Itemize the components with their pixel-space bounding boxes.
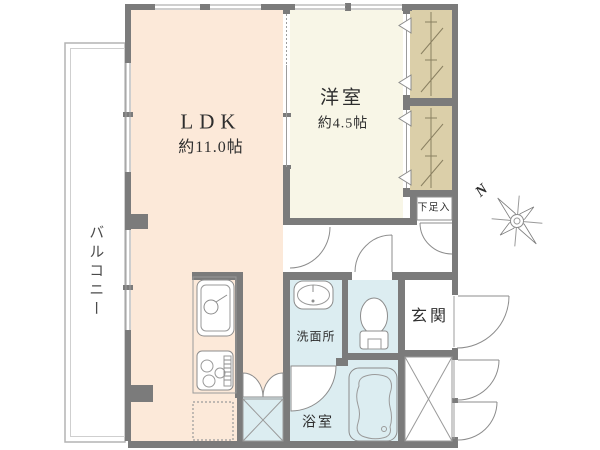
kitchen-sink (197, 280, 234, 336)
floor-plan: LDK 約11.0帖 洋室 約4.5帖 バルコニー 下足入 玄関 洗面所 浴室 … (0, 0, 600, 450)
western-room-area-label: 約4.5帖 (318, 116, 369, 131)
shoe-cabinet-label: 下足入 (418, 203, 451, 214)
ldk-label: LDK (180, 110, 241, 133)
entrance-label: 玄関 (411, 308, 449, 326)
western-room-label: 洋室 (320, 89, 364, 110)
ldk-area-label: 約11.0帖 (178, 139, 243, 157)
western-room-floor (290, 10, 403, 218)
balcony-label: バルコニー (87, 225, 104, 320)
stove (197, 351, 233, 390)
bathroom-label: 浴室 (302, 415, 334, 430)
washbasin (294, 281, 333, 309)
washroom-label: 洗面所 (296, 330, 335, 343)
toilet (360, 298, 388, 349)
entrance-storage-box (405, 357, 452, 441)
